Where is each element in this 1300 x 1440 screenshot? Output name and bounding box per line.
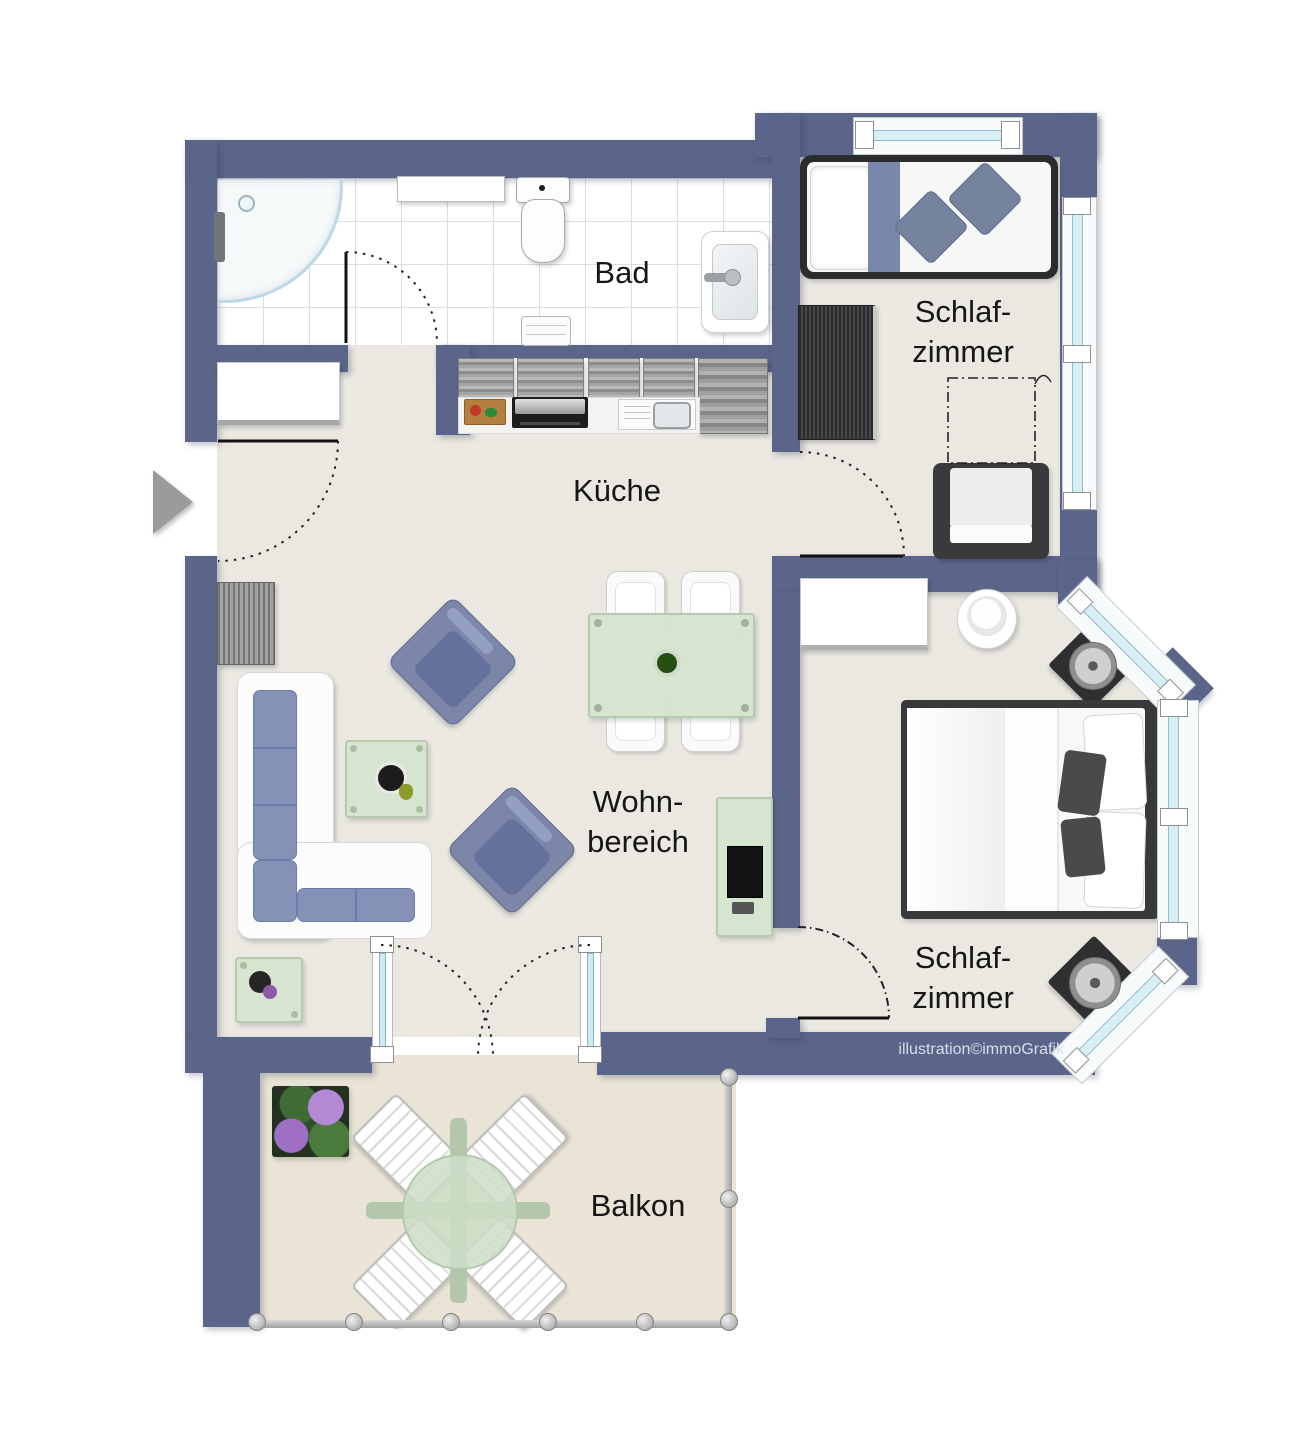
side-table-plant: [235, 957, 303, 1023]
bedroom1-wardrobe: [798, 305, 876, 440]
bedroom2-duvet-fold: [907, 708, 1007, 911]
bedroom1-bed-pillow: [810, 166, 872, 270]
kitchen-upper-cabinet-2: [517, 358, 584, 399]
room-label-bedroom2: Schlaf- zimmer: [912, 938, 1014, 1018]
bedroom2-pillow-gray-1: [1057, 749, 1107, 816]
wall-left-upper: [185, 140, 217, 442]
bedroom2-bed: [901, 700, 1159, 919]
railing-ball-3: [442, 1313, 460, 1331]
railing-ball-4: [539, 1313, 557, 1331]
wall-balcony-left: [203, 1073, 260, 1327]
kitchen-tall-cabinet: [698, 358, 768, 434]
room-label-bedroom1-line1: Schlaf-: [912, 292, 1014, 332]
balcony-flower-box: [272, 1086, 349, 1157]
balcony-door-right: [580, 942, 601, 1060]
bathroom-sink-faucet-knob: [724, 269, 741, 286]
side-table-flower: [263, 985, 277, 999]
railing-ball-1: [248, 1313, 266, 1331]
coffee-table-pear: [399, 784, 413, 800]
wall-kitchen-bedroom1: [772, 113, 800, 452]
balcony-door-right-post-top: [578, 936, 602, 953]
room-label-balcony: Balkon: [591, 1186, 686, 1226]
bedroom2-nightstand-top-disc: [1069, 642, 1117, 690]
window-bay-right-post-mid: [1160, 808, 1188, 826]
wall-left-lower: [185, 556, 217, 1037]
room-label-bedroom1-line2: zimmer: [912, 332, 1014, 372]
toilet-bowl: [521, 199, 565, 263]
kitchen-sink-basin: [653, 402, 691, 429]
bedroom1-armchair-cushion: [950, 468, 1032, 528]
bedroom2-duvet-band: [1005, 708, 1059, 911]
floor-plan: Bad Küche Schlaf- zimmer Wohn- bereich S…: [0, 0, 1300, 1440]
balcony-door-left: [372, 942, 393, 1060]
balcony-railing-bottom: [255, 1320, 737, 1328]
window-bay-right-post-bottom: [1160, 922, 1188, 940]
shower-fixture: [214, 212, 225, 262]
watermark-credit: illustration©immoGrafik: [850, 1041, 1064, 1059]
bedroom1-armchair: [933, 463, 1049, 559]
window-bedroom1-top-post-right: [1001, 121, 1020, 149]
railing-ball-5: [636, 1313, 654, 1331]
room-label-balcony-text: Balkon: [591, 1188, 686, 1223]
kitchen-upper-cabinet-3: [588, 358, 640, 399]
balcony-door-left-post-top: [370, 936, 394, 953]
bedroom2-dresser: [800, 578, 928, 650]
window-bedroom1-right-post-top: [1063, 197, 1091, 215]
balcony-door-left-post-bottom: [370, 1046, 394, 1063]
entry-closet: [217, 362, 340, 425]
room-label-living: Wohn- bereich: [587, 782, 689, 862]
bedroom1-bed-runner: [868, 162, 900, 272]
bathroom-sink: [701, 231, 769, 333]
kitchen-sink-unit: [618, 399, 696, 430]
sofa-cushion-bottom-row: [297, 888, 415, 922]
tv-accessory: [732, 902, 754, 914]
railing-ball-2: [345, 1313, 363, 1331]
entrance-arrow-icon: [153, 470, 193, 534]
sofa-cushion-corner: [253, 860, 297, 922]
balcony-table-glass: [402, 1154, 518, 1270]
entry-sideboard: [217, 582, 275, 665]
room-label-kitchen-text: Küche: [573, 473, 661, 508]
room-label-living-line1: Wohn-: [587, 782, 689, 822]
balcony-door-right-post-bottom: [578, 1046, 602, 1063]
room-label-bathroom: Bad: [594, 253, 649, 293]
bedroom2-round-stool: [957, 589, 1017, 649]
dining-table: [588, 613, 755, 718]
window-bay-right-post-top: [1160, 699, 1188, 717]
window-bedroom1-right-post-mid: [1063, 345, 1091, 363]
wall-door-stub: [766, 1018, 800, 1038]
wall-bottom-left: [185, 1037, 372, 1073]
room-label-bedroom2-line1: Schlaf-: [912, 938, 1014, 978]
kitchen-stove: [512, 397, 588, 428]
railing-ball-right-mid: [720, 1190, 738, 1208]
bathroom-stool: [521, 316, 571, 346]
dining-table-bowl: [653, 649, 681, 677]
room-label-bathroom-text: Bad: [594, 255, 649, 290]
window-bedroom1-top-post-left: [855, 121, 874, 149]
room-label-bedroom2-line2: zimmer: [912, 978, 1014, 1018]
room-label-kitchen: Küche: [573, 471, 661, 511]
tv-board: [716, 797, 773, 937]
window-bedroom1-right-post-bottom: [1063, 492, 1091, 510]
kitchen-cutting-board: [464, 399, 506, 425]
bathroom-wall-shelf: [397, 176, 505, 202]
railing-ball-right-top: [720, 1068, 738, 1086]
railing-ball-corner: [720, 1313, 738, 1331]
shower-drain-icon: [238, 195, 255, 212]
room-label-living-line2: bereich: [587, 822, 689, 862]
sofa-cushion-left-column: [253, 690, 297, 860]
window-bedroom1-top-glass: [862, 130, 1014, 141]
coffee-table: [345, 740, 428, 818]
toilet-flush-dot: [539, 185, 545, 191]
room-label-bedroom1: Schlaf- zimmer: [912, 292, 1014, 372]
tv-screen: [727, 846, 763, 898]
kitchen-upper-cabinet-1: [458, 358, 514, 399]
bedroom1-armchair-seat-front: [950, 525, 1032, 543]
kitchen-upper-cabinet-4: [643, 358, 695, 399]
bedroom2-pillow-gray-2: [1060, 816, 1106, 878]
wall-top-bathroom: [185, 140, 772, 178]
wall-bedroom2-left: [772, 592, 800, 928]
bedroom2-nightstand-bottom-disc: [1069, 957, 1121, 1009]
